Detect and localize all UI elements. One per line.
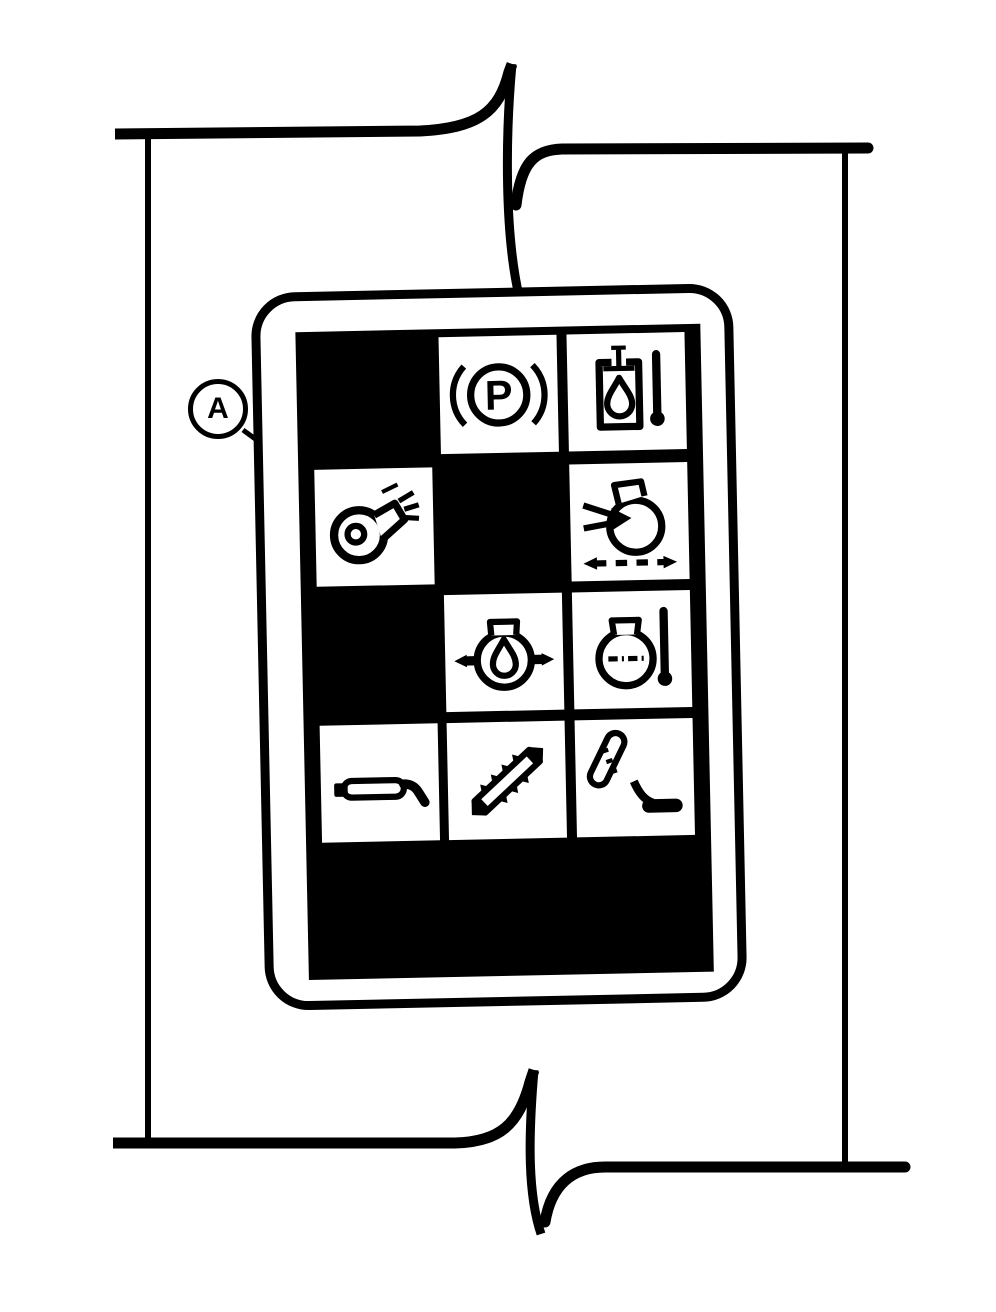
unloading-tube-icon — [581, 725, 689, 831]
air-blower-icon — [320, 474, 428, 580]
oil-pressure-icon — [450, 599, 558, 705]
oil-temperature-icon — [578, 597, 686, 703]
oil-level-temperature-cell — [566, 332, 686, 451]
oil-flow-icon — [575, 469, 683, 575]
oil-flow-cell — [569, 462, 689, 581]
top-border-left-segment — [115, 64, 512, 134]
bottom-border-right-segment — [545, 1167, 905, 1222]
callout-letter: A — [207, 394, 229, 424]
toothed-bar-icon — [453, 727, 561, 833]
warning-light-panel: P — [251, 283, 748, 1011]
oil-temperature-cell — [572, 590, 692, 709]
cutterbar-icon — [326, 730, 434, 836]
callout-a-label: A — [188, 379, 248, 439]
parking-brake-letter: P — [484, 371, 513, 419]
blank-dark-cell — [441, 465, 561, 584]
blank-dark-cell — [312, 337, 432, 456]
top-border-right-segment — [516, 148, 868, 205]
parking-brake-cell: P — [438, 335, 558, 454]
figure-canvas: P — [0, 0, 996, 1312]
cutterbar-cell — [320, 723, 440, 842]
oil-level-temperature-icon — [573, 339, 681, 445]
unloading-tube-cell — [575, 718, 695, 837]
symbol-grid: P — [295, 324, 713, 980]
parking-brake-icon: P — [445, 341, 553, 447]
oil-pressure-cell — [444, 593, 564, 712]
blank-dark-cell — [317, 595, 437, 714]
bottom-break-stroke — [530, 1070, 541, 1234]
air-blower-cell — [314, 467, 434, 586]
toothed-bar-cell — [447, 721, 567, 840]
bottom-border-left-segment — [113, 1070, 534, 1143]
